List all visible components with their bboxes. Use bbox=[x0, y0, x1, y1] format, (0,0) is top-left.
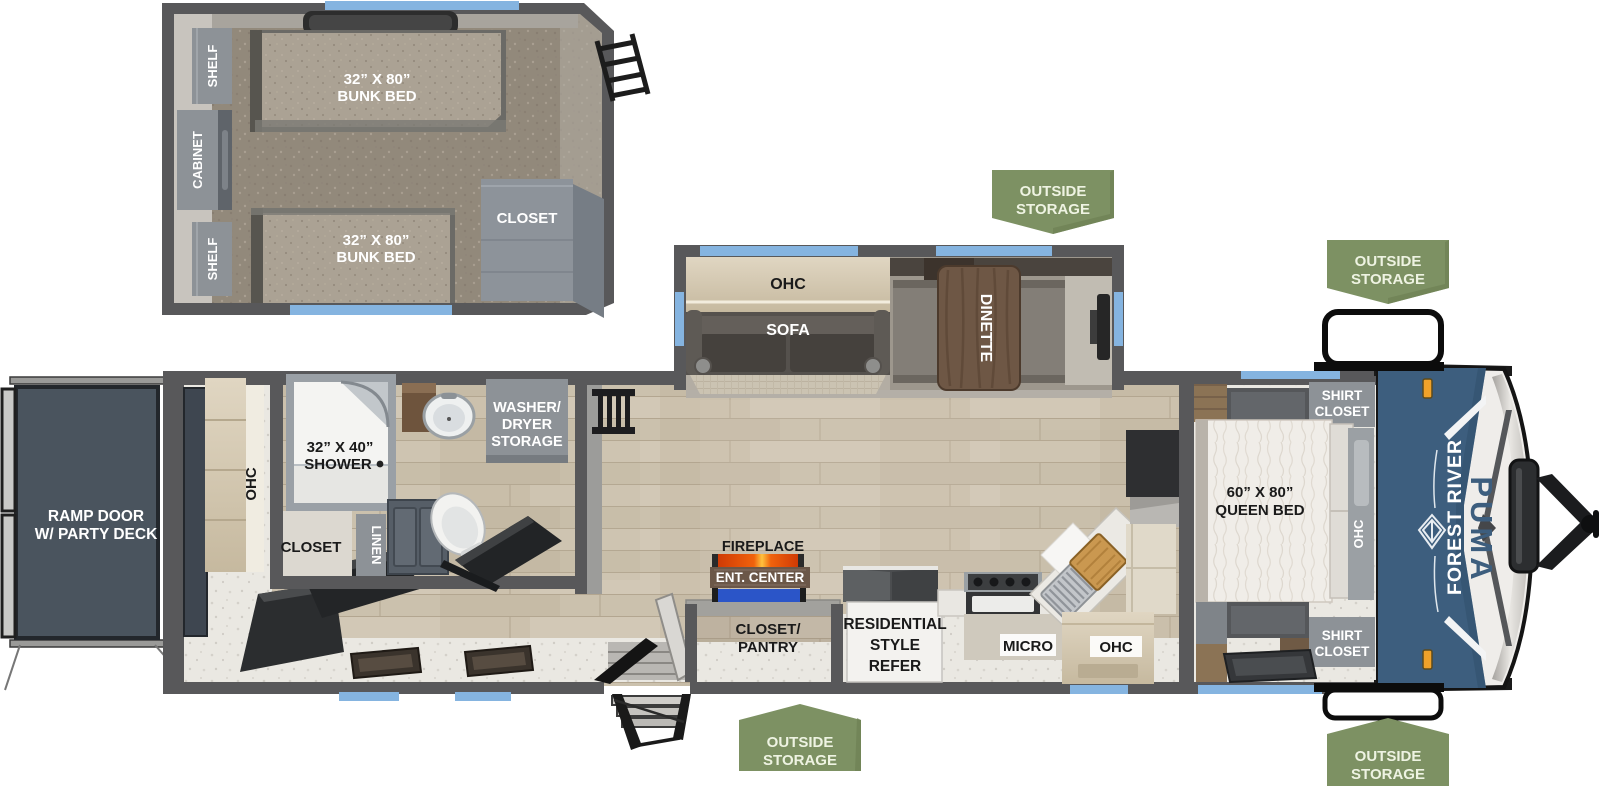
svg-text:ENT. CENTER: ENT. CENTER bbox=[716, 570, 805, 585]
svg-text:CABINET: CABINET bbox=[190, 131, 205, 189]
svg-text:SHIRT: SHIRT bbox=[1322, 388, 1363, 403]
svg-text:FIREPLACE: FIREPLACE bbox=[722, 539, 805, 555]
svg-text:REFER: REFER bbox=[869, 658, 922, 675]
svg-text:OHC: OHC bbox=[1351, 519, 1366, 549]
svg-text:STORAGE: STORAGE bbox=[1351, 766, 1425, 783]
svg-text:RAMP DOOR: RAMP DOOR bbox=[48, 508, 144, 525]
svg-text:STYLE: STYLE bbox=[870, 637, 920, 654]
svg-text:CLOSET: CLOSET bbox=[1315, 404, 1371, 419]
svg-text:STORAGE: STORAGE bbox=[1016, 201, 1090, 218]
svg-text:SHIRT: SHIRT bbox=[1322, 628, 1363, 643]
svg-text:OUTSIDE: OUTSIDE bbox=[1355, 748, 1422, 765]
svg-text:STORAGE: STORAGE bbox=[1351, 271, 1425, 288]
svg-text:SHELF: SHELF bbox=[205, 238, 220, 281]
svg-text:CLOSET/: CLOSET/ bbox=[735, 621, 801, 638]
svg-text:WASHER/: WASHER/ bbox=[493, 400, 561, 416]
svg-text:32” X 80”: 32” X 80” bbox=[344, 71, 411, 88]
svg-text:FOREST RIVER: FOREST RIVER bbox=[1444, 439, 1466, 595]
svg-text:OUTSIDE: OUTSIDE bbox=[1020, 183, 1087, 200]
svg-text:SOFA: SOFA bbox=[766, 322, 810, 339]
svg-text:RESIDENTIAL: RESIDENTIAL bbox=[843, 616, 946, 633]
svg-text:OHC: OHC bbox=[770, 276, 806, 293]
svg-text:BUNK BED: BUNK BED bbox=[336, 249, 415, 266]
svg-text:BUNK BED: BUNK BED bbox=[337, 88, 416, 105]
svg-text:STORAGE: STORAGE bbox=[763, 752, 837, 769]
svg-text:SHELF: SHELF bbox=[205, 45, 220, 88]
svg-text:W/ PARTY DECK: W/ PARTY DECK bbox=[35, 526, 158, 543]
svg-text:DRYER: DRYER bbox=[502, 417, 553, 433]
svg-text:CLOSET: CLOSET bbox=[497, 210, 558, 227]
svg-text:MICRO: MICRO bbox=[1003, 638, 1053, 655]
svg-text:OHC: OHC bbox=[1099, 639, 1133, 656]
svg-text:SHOWER: SHOWER bbox=[304, 456, 372, 473]
svg-text:QUEEN BED: QUEEN BED bbox=[1215, 502, 1304, 519]
svg-text:OUTSIDE: OUTSIDE bbox=[1355, 253, 1422, 270]
svg-text:LINEN: LINEN bbox=[369, 526, 384, 565]
svg-text:PUMA: PUMA bbox=[1464, 476, 1499, 583]
svg-text:32” X 40”: 32” X 40” bbox=[307, 439, 374, 456]
svg-text:STORAGE: STORAGE bbox=[491, 434, 563, 450]
svg-text:OUTSIDE: OUTSIDE bbox=[767, 734, 834, 751]
svg-text:CLOSET: CLOSET bbox=[281, 539, 342, 556]
svg-text:32” X 80”: 32” X 80” bbox=[343, 232, 410, 249]
svg-text:60” X 80”: 60” X 80” bbox=[1227, 484, 1294, 501]
svg-text:CLOSET: CLOSET bbox=[1315, 644, 1371, 659]
svg-text:PANTRY: PANTRY bbox=[738, 639, 798, 656]
svg-text:DINETTE: DINETTE bbox=[977, 294, 994, 363]
svg-text:OHC: OHC bbox=[243, 467, 260, 501]
